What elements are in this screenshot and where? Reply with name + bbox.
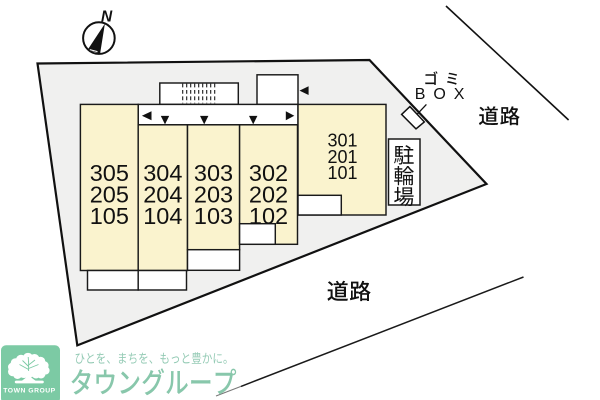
svg-text:105: 105 xyxy=(90,203,129,229)
svg-text:TOWN GROUP: TOWN GROUP xyxy=(3,388,55,395)
svg-text:102: 102 xyxy=(249,203,288,229)
svg-text:BOX: BOX xyxy=(415,86,473,103)
svg-text:103: 103 xyxy=(194,203,233,229)
svg-text:101: 101 xyxy=(327,163,357,183)
svg-text:N: N xyxy=(101,9,113,26)
svg-text:104: 104 xyxy=(143,203,182,229)
